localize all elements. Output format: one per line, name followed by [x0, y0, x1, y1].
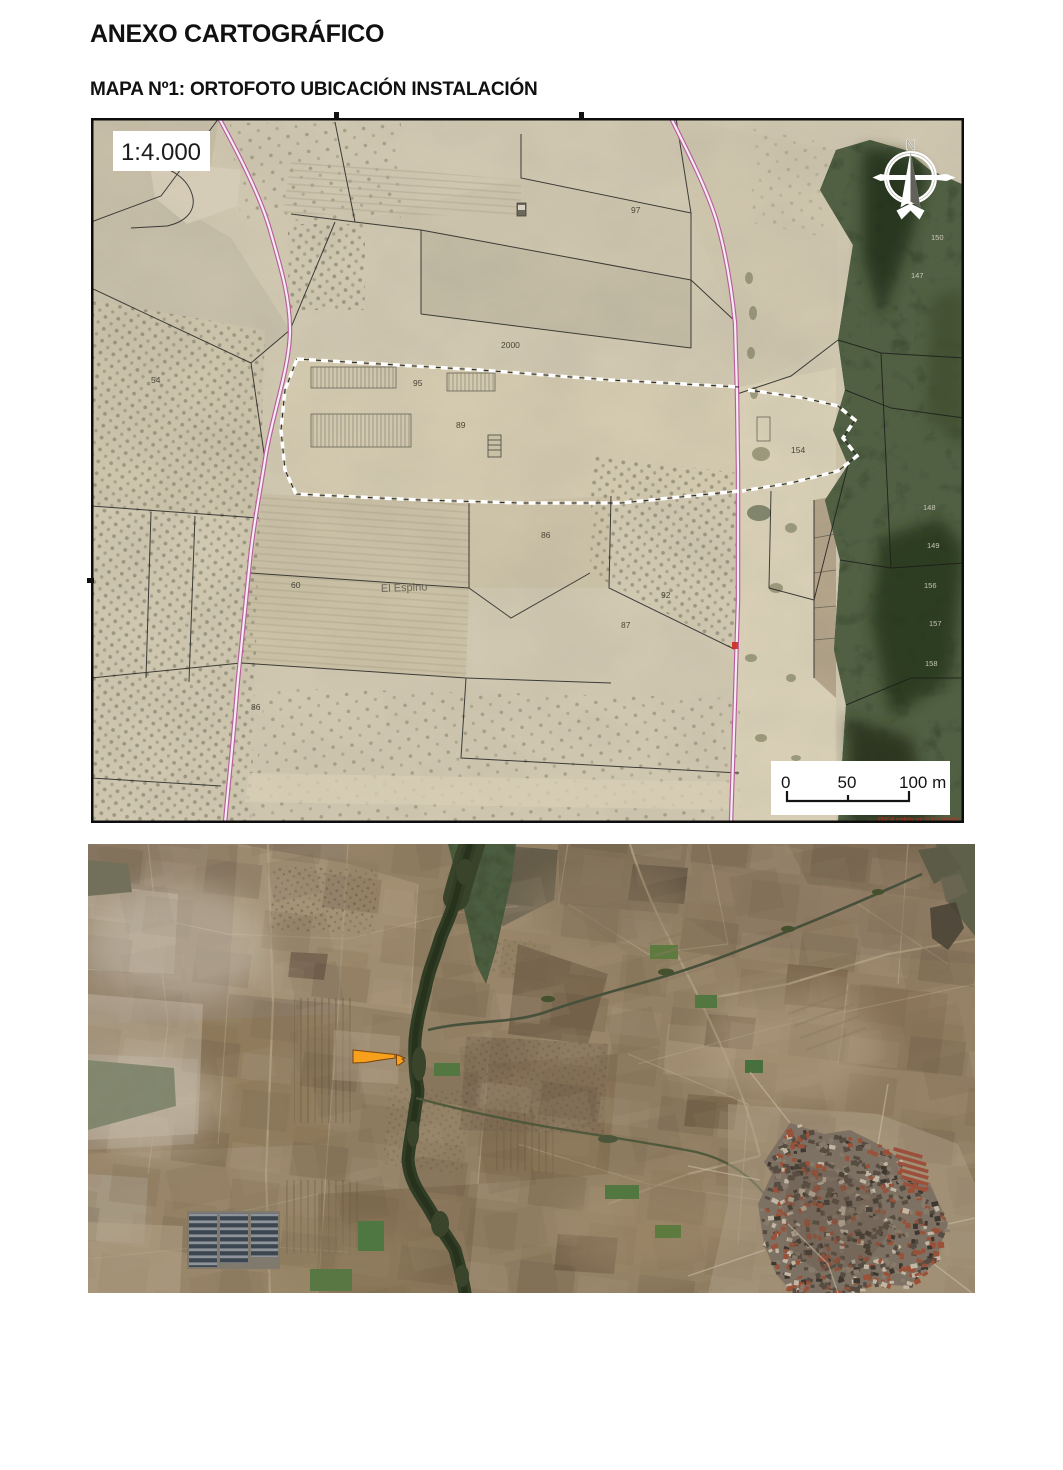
svg-text:149: 149	[927, 541, 940, 550]
svg-text:0: 0	[781, 773, 790, 792]
svg-text:86: 86	[251, 702, 261, 712]
svg-text:92: 92	[661, 590, 671, 600]
svg-text:157: 157	[929, 619, 942, 628]
svg-text:158: 158	[925, 659, 938, 668]
svg-text:1:4.000: 1:4.000	[121, 139, 201, 166]
svg-text:150: 150	[931, 233, 944, 242]
svg-text:147: 147	[911, 271, 924, 280]
svg-text:2000: 2000	[501, 340, 520, 350]
svg-text:148: 148	[923, 503, 936, 512]
svg-text:97: 97	[631, 205, 641, 215]
svg-text:54: 54	[151, 375, 161, 385]
svg-text:87: 87	[621, 620, 631, 630]
svg-text:100 m: 100 m	[899, 773, 946, 792]
svg-text:N: N	[905, 137, 915, 153]
svg-text:60: 60	[291, 580, 301, 590]
svg-text:156: 156	[924, 581, 937, 590]
svg-text:86: 86	[541, 530, 551, 540]
svg-text:154: 154	[791, 445, 805, 455]
svg-text:95: 95	[413, 378, 423, 388]
svg-text:50: 50	[838, 773, 857, 792]
svg-text:89: 89	[456, 420, 466, 430]
svg-text:El Espino: El Espino	[381, 581, 428, 595]
